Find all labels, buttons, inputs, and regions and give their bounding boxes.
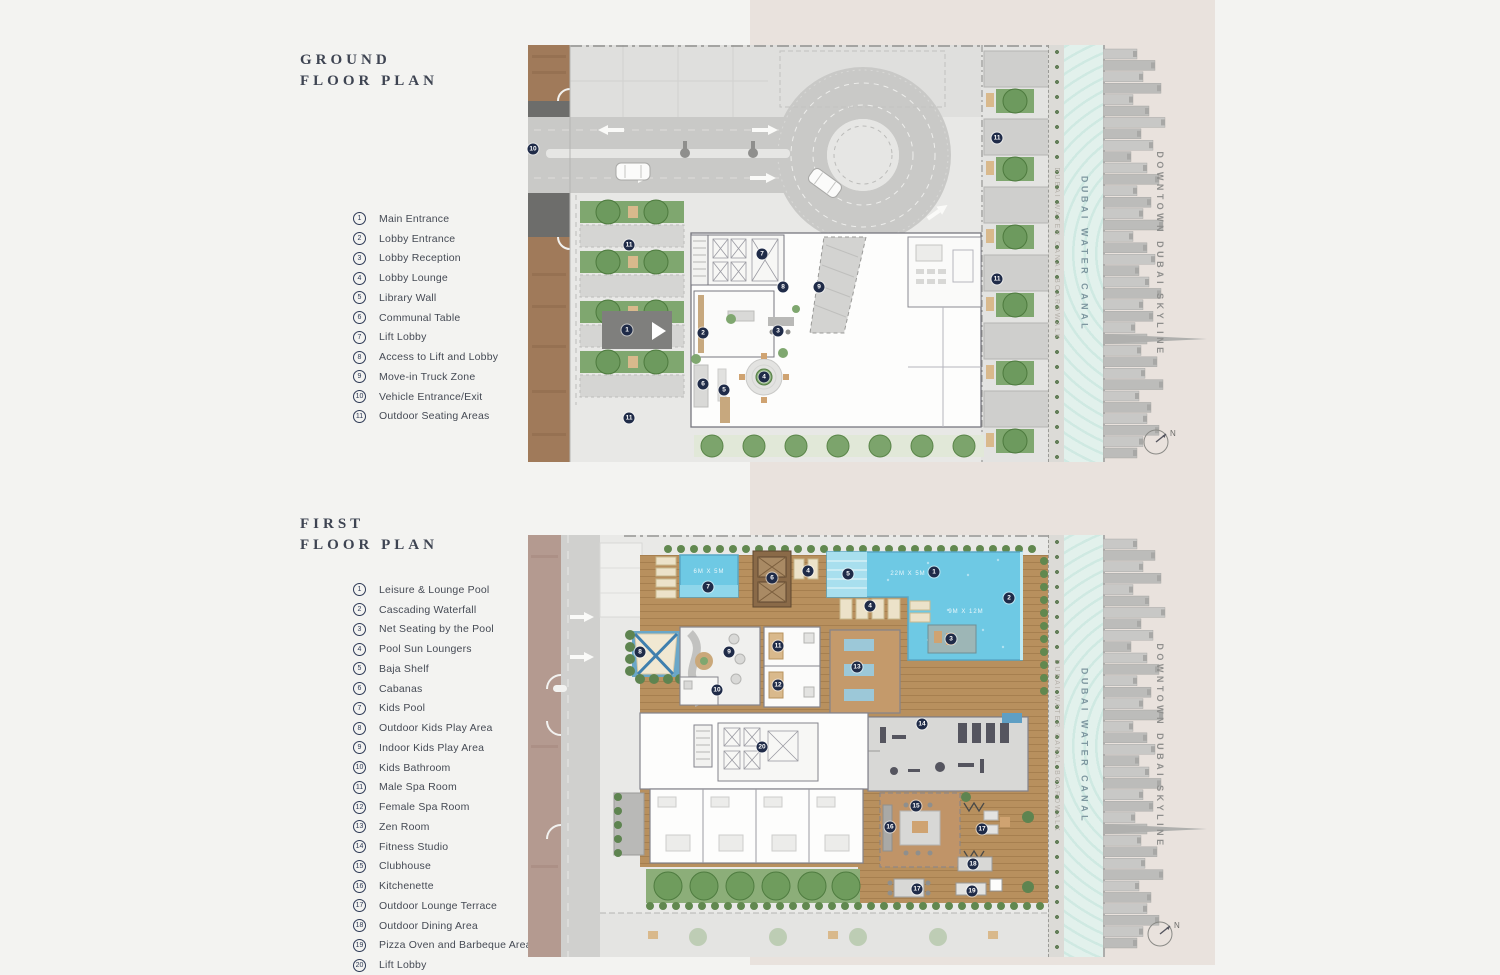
first-floor-plan-drawing: 22M X 5M 9M X 12M 6M X 5M: [528, 535, 1055, 957]
legend-label: Pizza Oven and Barbeque Area: [379, 939, 532, 951]
legend-label: Outdoor Dining Area: [379, 920, 478, 932]
legend-number-badge: 11: [353, 410, 366, 423]
legend-item: 2Cascading Waterfall: [353, 600, 532, 620]
legend-number-badge: 5: [353, 662, 366, 675]
legend-number-badge: 11: [353, 781, 366, 794]
legend-number-badge: 7: [353, 331, 366, 344]
legend-item: 13Zen Room: [353, 817, 532, 837]
spa-rooms: [764, 627, 820, 707]
compass-icon: N: [1140, 424, 1182, 458]
legend-number-badge: 5: [353, 291, 366, 304]
legend-number-badge: 4: [353, 643, 366, 656]
ground-floor-legend: 1Main Entrance2Lobby Entrance3Lobby Rece…: [353, 209, 498, 426]
legend-item: 16Kitchenette: [353, 876, 532, 896]
legend-label: Main Entrance: [379, 213, 449, 225]
legend-item: 4Lobby Lounge: [353, 268, 498, 288]
legend-item: 10Vehicle Entrance/Exit: [353, 387, 498, 407]
legend-item: 15Clubhouse: [353, 857, 532, 877]
legend-item: 14Fitness Studio: [353, 837, 532, 857]
legend-item: 6Cabanas: [353, 679, 532, 699]
boardwalk-label: DUBAI WATER CANAL BOARDWALK: [1053, 167, 1060, 340]
water-canal: DUBAI WATER CANAL: [1064, 45, 1105, 462]
first-floor-plan: 22M X 5M 9M X 12M 6M X 5M: [528, 535, 1055, 957]
legend-item: 10Kids Bathroom: [353, 758, 532, 778]
legend-number-badge: 1: [353, 212, 366, 225]
legend-number-badge: 2: [353, 232, 366, 245]
legend-number-badge: 3: [353, 623, 366, 636]
svg-text:N: N: [1170, 429, 1176, 438]
legend-item: 1Leisure & Lounge Pool: [353, 580, 532, 600]
legend-label: Outdoor Lounge Terrace: [379, 900, 497, 912]
legend-item: 4Pool Sun Loungers: [353, 639, 532, 659]
legend-number-badge: 17: [353, 899, 366, 912]
legend-item: 20Lift Lobby: [353, 955, 532, 975]
boardwalk-label: DUBAI WATER CANAL BOARDWALK: [1053, 659, 1060, 832]
legend-label: Kids Bathroom: [379, 762, 450, 774]
lift-lobby-core: [640, 713, 868, 789]
legend-label: Lobby Reception: [379, 252, 461, 264]
legend-number-badge: 3: [353, 252, 366, 265]
canal-strip: DUBAI WATER CANAL BOARDWALK DUBAI WATER …: [1048, 535, 1105, 957]
legend-label: Cascading Waterfall: [379, 604, 476, 616]
legend-number-badge: 8: [353, 351, 366, 364]
shade-sail: [625, 630, 685, 684]
legend-number-badge: 8: [353, 722, 366, 735]
legend-label: Lobby Lounge: [379, 272, 448, 284]
legend-label: Lift Lobby: [379, 331, 427, 343]
canal-strip: DUBAI WATER CANAL BOARDWALK DUBAI WATER …: [1048, 45, 1105, 462]
legend-item: 7Lift Lobby: [353, 328, 498, 348]
legend-item: 3Net Seating by the Pool: [353, 620, 532, 640]
legend-item: 1Main Entrance: [353, 209, 498, 229]
legend-item: 6Communal Table: [353, 308, 498, 328]
legend-number-badge: 9: [353, 741, 366, 754]
legend-label: Outdoor Seating Areas: [379, 410, 489, 422]
legend-label: Outdoor Kids Play Area: [379, 722, 493, 734]
legend-number-badge: 16: [353, 880, 366, 893]
ground-floor-title: GROUND FLOOR PLAN: [300, 50, 438, 92]
cabanas: [753, 551, 791, 607]
canal-label: DUBAI WATER CANAL: [1080, 175, 1090, 331]
legend-item: 12Female Spa Room: [353, 797, 532, 817]
legend-item: 9Move-in Truck Zone: [353, 367, 498, 387]
legend-item: 7Kids Pool: [353, 699, 532, 719]
legend-label: Clubhouse: [379, 860, 431, 872]
skyline-label: DOWNTOWN DUBAI SKYLINE: [1155, 151, 1165, 356]
first-floor-title: FIRST FLOOR PLAN: [300, 514, 438, 556]
zen-room: [830, 630, 900, 713]
bottom-promenade: [600, 913, 1048, 957]
ground-floor-plan-drawing: [528, 45, 1055, 462]
legend-number-badge: 12: [353, 801, 366, 814]
kids-pool: 6M X 5M: [680, 555, 738, 597]
brochure-page: { "ground_section": { "title": "GROUND\n…: [0, 0, 1500, 965]
svg-text:22M X 5M: 22M X 5M: [890, 571, 925, 577]
legend-label: Access to Lift and Lobby: [379, 351, 498, 363]
legend-label: Kitchenette: [379, 880, 434, 892]
indoor-kids-play-room: [680, 627, 760, 705]
legend-label: Kids Pool: [379, 702, 425, 714]
legend-item: 8Outdoor Kids Play Area: [353, 718, 532, 738]
legend-item: 5Library Wall: [353, 288, 498, 308]
legend-label: Female Spa Room: [379, 801, 470, 813]
svg-text:9M X 12M: 9M X 12M: [948, 609, 983, 615]
legend-item: 5Baja Shelf: [353, 659, 532, 679]
legend-label: Lift Lobby: [379, 959, 427, 971]
legend-number-badge: 15: [353, 860, 366, 873]
skyline-label: DOWNTOWN DUBAI SKYLINE: [1155, 643, 1165, 848]
legend-number-badge: 10: [353, 761, 366, 774]
legend-label: Vehicle Entrance/Exit: [379, 391, 482, 403]
fitness-studio: [868, 717, 1028, 791]
legend-label: Library Wall: [379, 292, 436, 304]
legend-label: Male Spa Room: [379, 781, 457, 793]
legend-number-badge: 20: [353, 959, 366, 972]
skyline-illustration: DOWNTOWN DUBAI SKYLINE: [1103, 45, 1215, 462]
legend-number-badge: 6: [353, 311, 366, 324]
boardwalk: DUBAI WATER CANAL BOARDWALK: [1048, 535, 1064, 957]
legend-item: 11Male Spa Room: [353, 778, 532, 798]
skyline-illustration: DOWNTOWN DUBAI SKYLINE: [1103, 535, 1215, 957]
legend-item: 3Lobby Reception: [353, 249, 498, 269]
legend-label: Leisure & Lounge Pool: [379, 584, 489, 596]
kitchenette-counter: [883, 805, 892, 851]
legend-number-badge: 14: [353, 840, 366, 853]
legend-label: Lobby Entrance: [379, 233, 455, 245]
boardwalk: DUBAI WATER CANAL BOARDWALK: [1048, 45, 1064, 462]
svg-text:N: N: [1174, 921, 1180, 930]
legend-label: Zen Room: [379, 821, 430, 833]
canal-label: DUBAI WATER CANAL: [1080, 668, 1090, 824]
legend-number-badge: 13: [353, 820, 366, 833]
legend-item: 18Outdoor Dining Area: [353, 916, 532, 936]
legend-label: Pool Sun Loungers: [379, 643, 472, 655]
legend-number-badge: 4: [353, 272, 366, 285]
compass-icon: N: [1144, 916, 1186, 950]
ground-floor-plan: 1234567891011111111: [528, 45, 1055, 462]
legend-number-badge: 10: [353, 390, 366, 403]
legend-item: 11Outdoor Seating Areas: [353, 407, 498, 427]
legend-number-badge: 7: [353, 702, 366, 715]
legend-label: Net Seating by the Pool: [379, 623, 494, 635]
legend-number-badge: 6: [353, 682, 366, 695]
legend-number-badge: 2: [353, 603, 366, 616]
legend-label: Fitness Studio: [379, 841, 448, 853]
apartment-units: [614, 789, 863, 863]
legend-label: Move-in Truck Zone: [379, 371, 475, 383]
legend-number-badge: 18: [353, 919, 366, 932]
legend-number-badge: 1: [353, 583, 366, 596]
svg-text:6M X 5M: 6M X 5M: [693, 569, 724, 575]
legend-item: 9Indoor Kids Play Area: [353, 738, 532, 758]
legend-item: 19Pizza Oven and Barbeque Area: [353, 936, 532, 956]
legend-item: 8Access to Lift and Lobby: [353, 347, 498, 367]
legend-label: Indoor Kids Play Area: [379, 742, 484, 754]
water-canal: DUBAI WATER CANAL: [1064, 535, 1105, 957]
legend-number-badge: 9: [353, 370, 366, 383]
baja-shelf: [827, 552, 867, 597]
legend-label: Cabanas: [379, 683, 422, 695]
legend-item: 2Lobby Entrance: [353, 229, 498, 249]
legend-item: 17Outdoor Lounge Terrace: [353, 896, 532, 916]
legend-number-badge: 19: [353, 939, 366, 952]
legend-label: Baja Shelf: [379, 663, 429, 675]
legend-label: Communal Table: [379, 312, 460, 324]
first-floor-legend: 1Leisure & Lounge Pool2Cascading Waterfa…: [353, 580, 532, 975]
